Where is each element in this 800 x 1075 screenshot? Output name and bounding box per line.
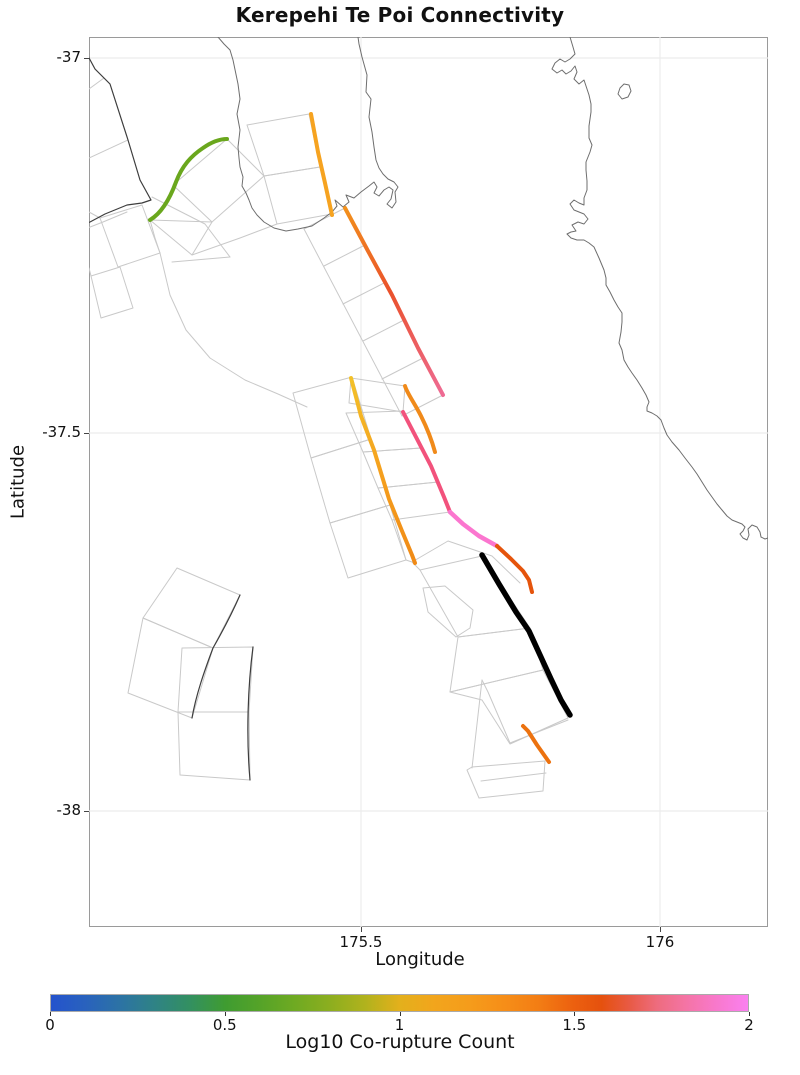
x-axis-label: Longitude [375,949,465,970]
fault-section-outline [472,680,482,768]
colorbar-tick-label: 2 [744,1016,754,1034]
fault-section-outline [343,283,384,304]
fault-section-outline [481,773,546,781]
x-tick-mark [660,927,661,932]
fault-section-outline [128,618,213,718]
fault-section-outline [89,140,128,158]
chart-title: Kerepehi Te Poi Connectivity [0,3,800,27]
fault-section-outline [192,224,277,255]
fault-section-outline [150,220,212,222]
colorbar-tick-mark [574,1012,575,1016]
y-tick-label: -38 [0,801,81,819]
trace-magenta [450,512,497,546]
fault-section-outline [420,556,530,637]
fault-section-outline [89,78,104,89]
colorbar-tick-mark [749,1012,750,1016]
coastline [618,84,631,99]
fault-section-outline [402,395,443,416]
trace-orange-south [523,726,549,762]
trace-orange-red-pink [345,208,443,395]
y-tick-mark [84,811,89,812]
colorbar-label: Log10 Co-rupture Count [285,1031,514,1053]
fault-section-outline [346,411,421,452]
colorbar-tick-label: 0.5 [213,1016,237,1034]
fault-section-outline [324,245,365,266]
fault-section-outline [192,222,212,255]
fault-section-outline [178,712,250,780]
fault-section-outline [150,220,192,255]
fault-section-outline [172,257,230,262]
map-svg [89,37,768,927]
fault-section-outline [293,377,371,458]
x-tick-label: 175.5 [340,933,383,951]
colorbar-tick-mark [50,1012,51,1016]
y-tick-mark [84,433,89,434]
colorbar-tick-label: 0 [45,1016,55,1034]
x-tick-mark [361,927,362,932]
trace-orange-north [311,114,332,215]
y-tick-label: -37 [0,48,81,66]
fault-section-outline [311,439,390,523]
fault-section-outline [467,761,545,798]
fault-section-outline [423,586,473,637]
fault-section-outline [406,541,520,583]
x-tick-label: 176 [646,933,675,951]
fault-section-outline [160,253,307,407]
fault-section-outline [173,139,264,222]
fault-section-outline [91,267,133,318]
fault-section-outline [178,647,253,712]
trace-green [150,139,227,220]
fault-section-outline [382,358,423,379]
colorbar-tick-mark [400,1012,401,1016]
coastline [218,37,398,231]
fault-section-outline [143,568,240,648]
fault-section-outline [89,268,91,276]
y-tick-label: -37.5 [0,423,81,441]
colorbar-tick-mark [225,1012,226,1016]
fault-section-outline [304,208,345,229]
fault-trace-dark-edge [192,595,240,718]
colorbar-tick-label: 1.5 [562,1016,586,1034]
fault-section-outline [363,320,404,341]
colorbar-gradient [50,994,749,1012]
fault-section-outline [150,220,160,253]
y-axis-label: Latitude [8,445,29,519]
y-tick-mark [84,58,89,59]
fault-section-outline [247,114,320,176]
fault-section-outline [100,205,160,267]
fault-trace-dark-edge [89,56,151,224]
